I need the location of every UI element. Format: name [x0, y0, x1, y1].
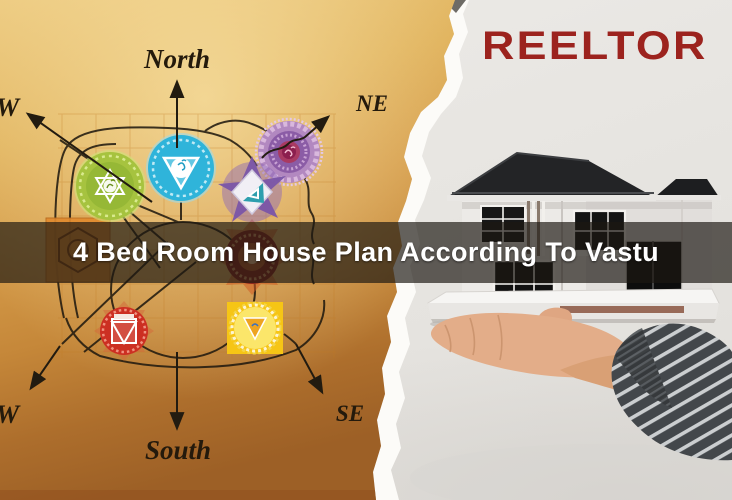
label-north-east: NE — [355, 91, 388, 116]
label-south-east: SE — [336, 401, 364, 426]
paper-bottom-shade — [0, 490, 378, 500]
label-south-west-partial: W — [0, 400, 21, 429]
heart-chakra-icon — [74, 150, 146, 222]
solar-plexus-chakra-icon — [227, 302, 283, 354]
throat-chakra-icon — [146, 133, 216, 203]
title-banner: 4 Bed Room House Plan According To Vastu — [0, 222, 732, 283]
label-north: North — [143, 44, 210, 74]
page-title: 4 Bed Room House Plan According To Vastu — [73, 237, 659, 268]
label-south: South — [145, 435, 211, 465]
root-chakra-icon — [94, 301, 154, 361]
blog-header-image: REELTOR — [0, 0, 732, 500]
label-north-west-partial: W — [0, 93, 21, 122]
